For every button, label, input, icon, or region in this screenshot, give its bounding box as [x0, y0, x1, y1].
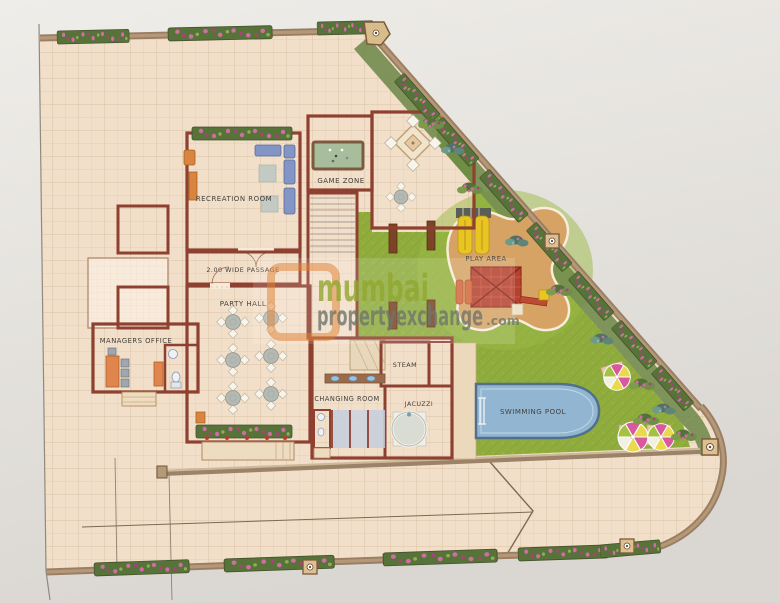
shower-stall [332, 410, 350, 448]
umbrella-icon [648, 424, 675, 451]
site-plan-svg: PLAY AREA SWIMMING POOL RECREATION ROOM [0, 0, 780, 603]
planter [192, 127, 292, 140]
sink [367, 376, 375, 381]
jacuzzi-label: JACUZZI [404, 401, 433, 408]
swimming-pool-label: SWIMMING POOL [500, 408, 566, 416]
umbrella-icon [618, 422, 648, 452]
rug [259, 165, 276, 182]
steam-label: STEAM [393, 361, 417, 369]
cabinet [154, 362, 163, 386]
recreation-room-label: RECREATION ROOM [196, 195, 272, 203]
billiards-table [313, 142, 363, 169]
tap [407, 413, 411, 417]
planter [196, 425, 292, 438]
office-step [122, 392, 156, 406]
shower-stall [350, 410, 368, 448]
sink [331, 376, 339, 381]
game-zone-label: GAME ZONE [317, 177, 364, 185]
watermark-brand-suffix: .com [486, 313, 520, 328]
watermark-brand-line2: propertyexchange [317, 301, 483, 332]
sink [349, 376, 357, 381]
shower-stall [368, 410, 385, 448]
door-opening [210, 283, 230, 289]
managers-office-label: MANAGERS OFFICE [100, 337, 173, 345]
watermark: mumbai propertyexchange .com [253, 258, 520, 344]
porch [202, 442, 294, 460]
pool-deck [452, 343, 476, 459]
changing-room-label: CHANGING ROOM [314, 395, 379, 403]
umbrella-icon [604, 364, 631, 391]
site-plan-page: PLAY AREA SWIMMING POOL RECREATION ROOM [0, 0, 780, 603]
wc [172, 372, 180, 382]
basin [169, 350, 178, 359]
desk [106, 356, 119, 387]
